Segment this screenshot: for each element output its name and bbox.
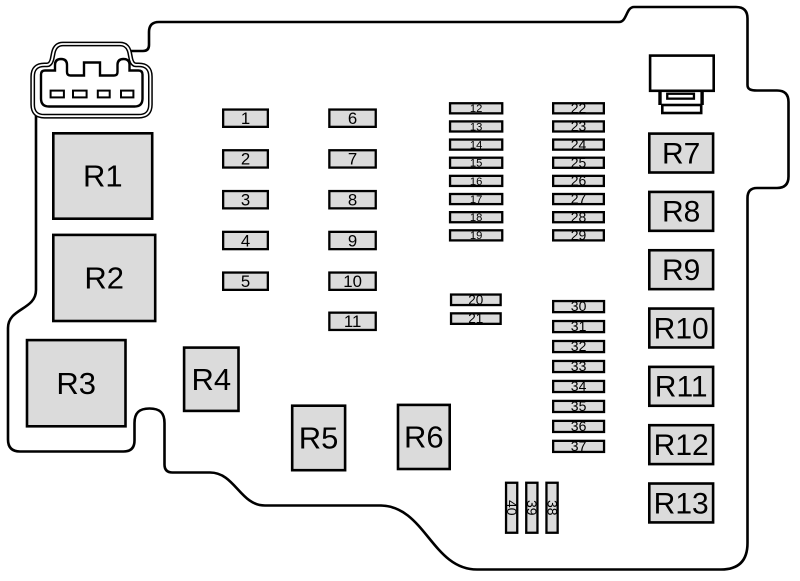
svg-text:34: 34 [571,378,587,394]
svg-text:R2: R2 [84,261,124,296]
svg-text:26: 26 [571,173,587,189]
svg-text:R4: R4 [191,362,231,397]
svg-text:35: 35 [571,398,587,414]
svg-text:5: 5 [241,272,250,291]
svg-text:7: 7 [348,150,357,169]
svg-text:21: 21 [468,311,483,326]
svg-text:R1: R1 [83,159,123,194]
svg-text:24: 24 [571,136,587,152]
svg-text:31: 31 [571,318,587,334]
svg-text:15: 15 [470,158,482,170]
svg-text:R8: R8 [662,196,700,229]
svg-text:R3: R3 [56,366,96,401]
svg-text:6: 6 [348,109,357,128]
svg-text:36: 36 [571,418,587,434]
svg-text:39: 39 [524,500,540,516]
svg-text:19: 19 [470,230,482,242]
svg-text:38: 38 [544,500,560,516]
svg-text:28: 28 [571,209,587,225]
svg-text:32: 32 [571,338,587,354]
svg-text:25: 25 [571,154,587,170]
svg-text:14: 14 [470,140,482,152]
svg-text:23: 23 [571,118,587,134]
svg-text:29: 29 [571,227,587,243]
svg-text:30: 30 [571,298,587,314]
svg-text:18: 18 [470,212,482,224]
svg-text:3: 3 [241,191,250,210]
svg-text:27: 27 [571,191,587,207]
svg-text:40: 40 [504,500,520,516]
svg-text:22: 22 [571,100,587,116]
svg-text:8: 8 [348,191,357,210]
svg-text:R13: R13 [654,487,709,520]
svg-text:R10: R10 [654,312,709,345]
svg-text:12: 12 [470,103,482,115]
svg-text:2: 2 [241,150,250,169]
svg-text:R9: R9 [662,254,700,287]
svg-text:R7: R7 [662,137,700,170]
svg-text:33: 33 [571,358,587,374]
svg-text:R11: R11 [655,371,708,404]
svg-text:37: 37 [571,438,587,454]
svg-text:R12: R12 [654,429,709,462]
svg-text:R6: R6 [404,420,444,455]
svg-text:1: 1 [241,109,250,128]
svg-text:13: 13 [470,121,482,133]
svg-text:10: 10 [343,272,362,291]
svg-text:9: 9 [348,231,357,250]
svg-text:R5: R5 [299,421,339,456]
svg-text:20: 20 [468,292,483,307]
svg-text:11: 11 [344,312,361,331]
svg-text:16: 16 [470,176,482,188]
svg-text:17: 17 [470,194,482,206]
svg-text:4: 4 [241,231,250,250]
